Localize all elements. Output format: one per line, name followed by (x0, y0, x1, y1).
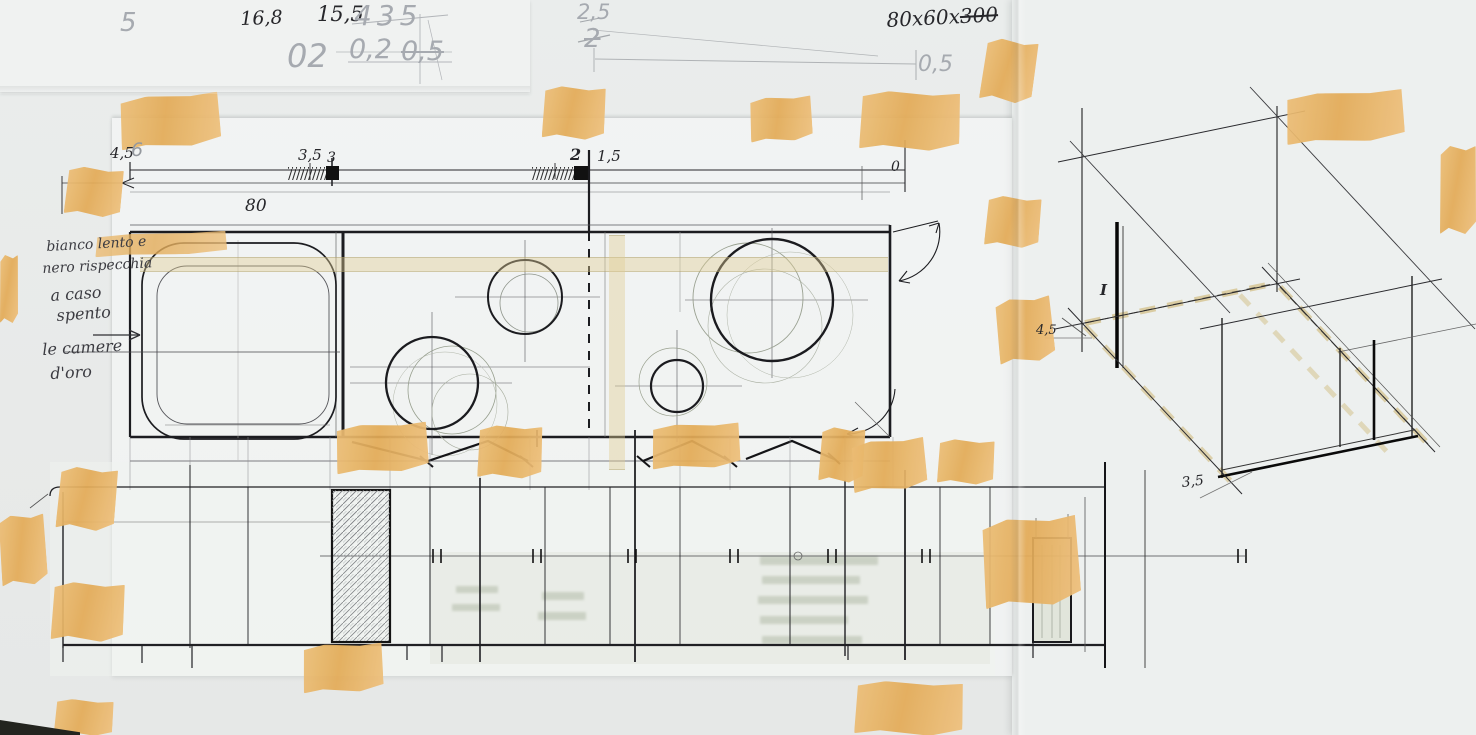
tape-piece (0, 255, 18, 323)
pencil-note-0-5: 0,5 (401, 38, 444, 65)
plan-dim-80: 80 (245, 198, 267, 215)
plan-dim-2: 2 (570, 147, 581, 163)
plan-dim-0: 0 (891, 160, 900, 174)
plan-dim-3-5: 3,5 (298, 148, 322, 163)
plan-dim-1-5: 1,5 (597, 149, 621, 164)
size-note-prefix: 80x60x (886, 4, 961, 32)
iso-dim-3-5: 3,5 (1181, 474, 1205, 490)
margin-note-line3: a caso (50, 284, 102, 304)
tape-piece (749, 95, 813, 142)
tape-strip-vertical (609, 235, 625, 470)
tape-strip-horizontal (140, 257, 888, 272)
tape-piece (542, 85, 607, 140)
dim-16-8: 16,8 (240, 9, 283, 29)
tape-piece (854, 680, 964, 735)
pencil-note-0-5-right: 0,5 (918, 54, 953, 76)
tape-piece (335, 422, 429, 475)
tape-piece (1440, 146, 1476, 234)
pencil-note-6: 6 (131, 141, 143, 160)
plan-view (65, 150, 940, 460)
size-note-struck: 300 (959, 2, 998, 28)
sketch-linework (0, 0, 1476, 735)
sketch-photo: 5 16,8 15,5 435 02 0,2 0,5 2,5 2 80x60x3… (0, 0, 1476, 735)
pencil-note-02: 02 (287, 40, 328, 72)
pencil-note-5: 5 (120, 10, 137, 36)
tape-piece (55, 466, 118, 533)
tape-piece (651, 422, 740, 469)
tape-piece (51, 581, 126, 643)
pencil-note-0-2: 0,2 (349, 36, 392, 63)
tape-piece (302, 643, 384, 694)
margin-note-line4: spento (56, 304, 111, 324)
pencil-note-2: 2 (584, 26, 601, 52)
tape-piece (984, 195, 1042, 250)
iso-dim-4-5: 4,5 (1036, 324, 1057, 337)
iso-mark-I: I (1100, 283, 1107, 298)
tape-piece (64, 165, 125, 219)
tape-piece (937, 439, 995, 486)
size-note: 80x60x300 (886, 4, 999, 30)
tape-piece (859, 90, 961, 151)
tape-piece (477, 425, 543, 479)
tape-piece (979, 37, 1039, 106)
margin-note-line6: d'oro (50, 364, 92, 382)
pencil-construction-top-middle (578, 18, 916, 80)
axonometric-sketch (1045, 87, 1476, 498)
tape-piece (980, 515, 1082, 609)
tape-piece (54, 698, 114, 735)
tape-piece (0, 513, 48, 586)
plan-dimension-lines (62, 140, 905, 214)
plan-dim-3: 3 (327, 151, 336, 165)
pencil-note-435: 435 (354, 2, 422, 30)
pencil-note-2-5: 2,5 (577, 2, 610, 23)
margin-note-line5: le camere (42, 338, 123, 358)
